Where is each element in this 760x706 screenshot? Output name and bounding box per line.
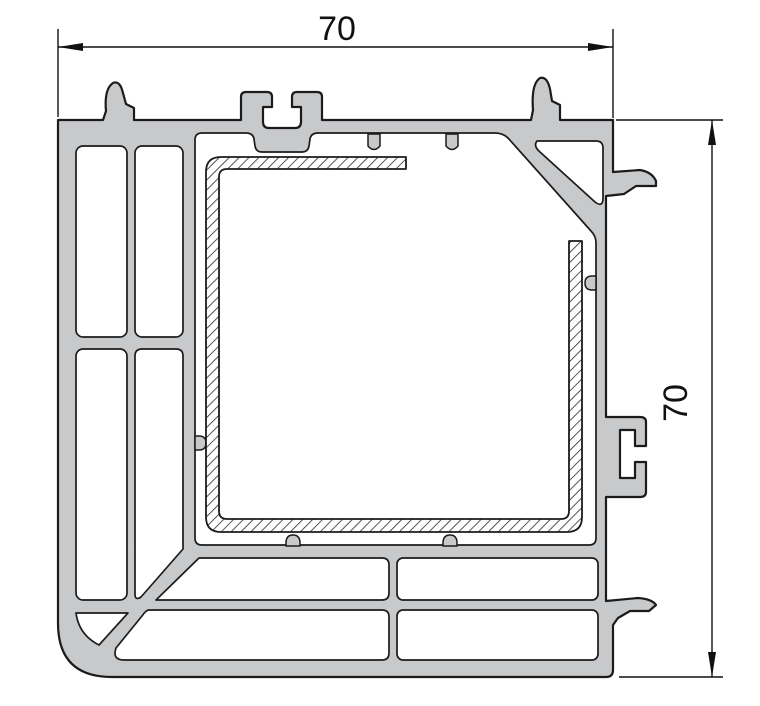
height-label: 70 bbox=[657, 384, 695, 422]
chamber-bottom-row2-left bbox=[115, 610, 389, 660]
nub-floor-1 bbox=[286, 535, 300, 546]
profile-drawing: 70 70 bbox=[0, 0, 760, 706]
arrow-left-icon bbox=[58, 43, 83, 51]
nub-left-wall bbox=[195, 436, 206, 450]
arrow-down-icon bbox=[708, 652, 716, 677]
nub-ceiling-1 bbox=[368, 134, 380, 150]
dimension-width: 70 bbox=[58, 10, 613, 118]
dimension-height: 70 bbox=[616, 120, 723, 677]
nub-right-wall bbox=[585, 276, 596, 290]
chamber-bottom-row1-right bbox=[397, 558, 598, 600]
nub-floor-2 bbox=[443, 535, 457, 546]
chamber-left-lower-1 bbox=[76, 349, 127, 600]
drawing-canvas: 70 70 bbox=[0, 0, 760, 706]
width-label: 70 bbox=[318, 10, 356, 48]
chamber-left-upper-1 bbox=[76, 146, 127, 337]
pvc-profile bbox=[58, 78, 656, 677]
chamber-main bbox=[195, 133, 596, 545]
arrow-right-icon bbox=[588, 43, 613, 51]
chamber-left-upper-2 bbox=[135, 146, 183, 337]
chamber-bottom-row2-right bbox=[397, 610, 598, 660]
arrow-up-icon bbox=[708, 120, 716, 145]
nub-ceiling-2 bbox=[446, 134, 458, 150]
